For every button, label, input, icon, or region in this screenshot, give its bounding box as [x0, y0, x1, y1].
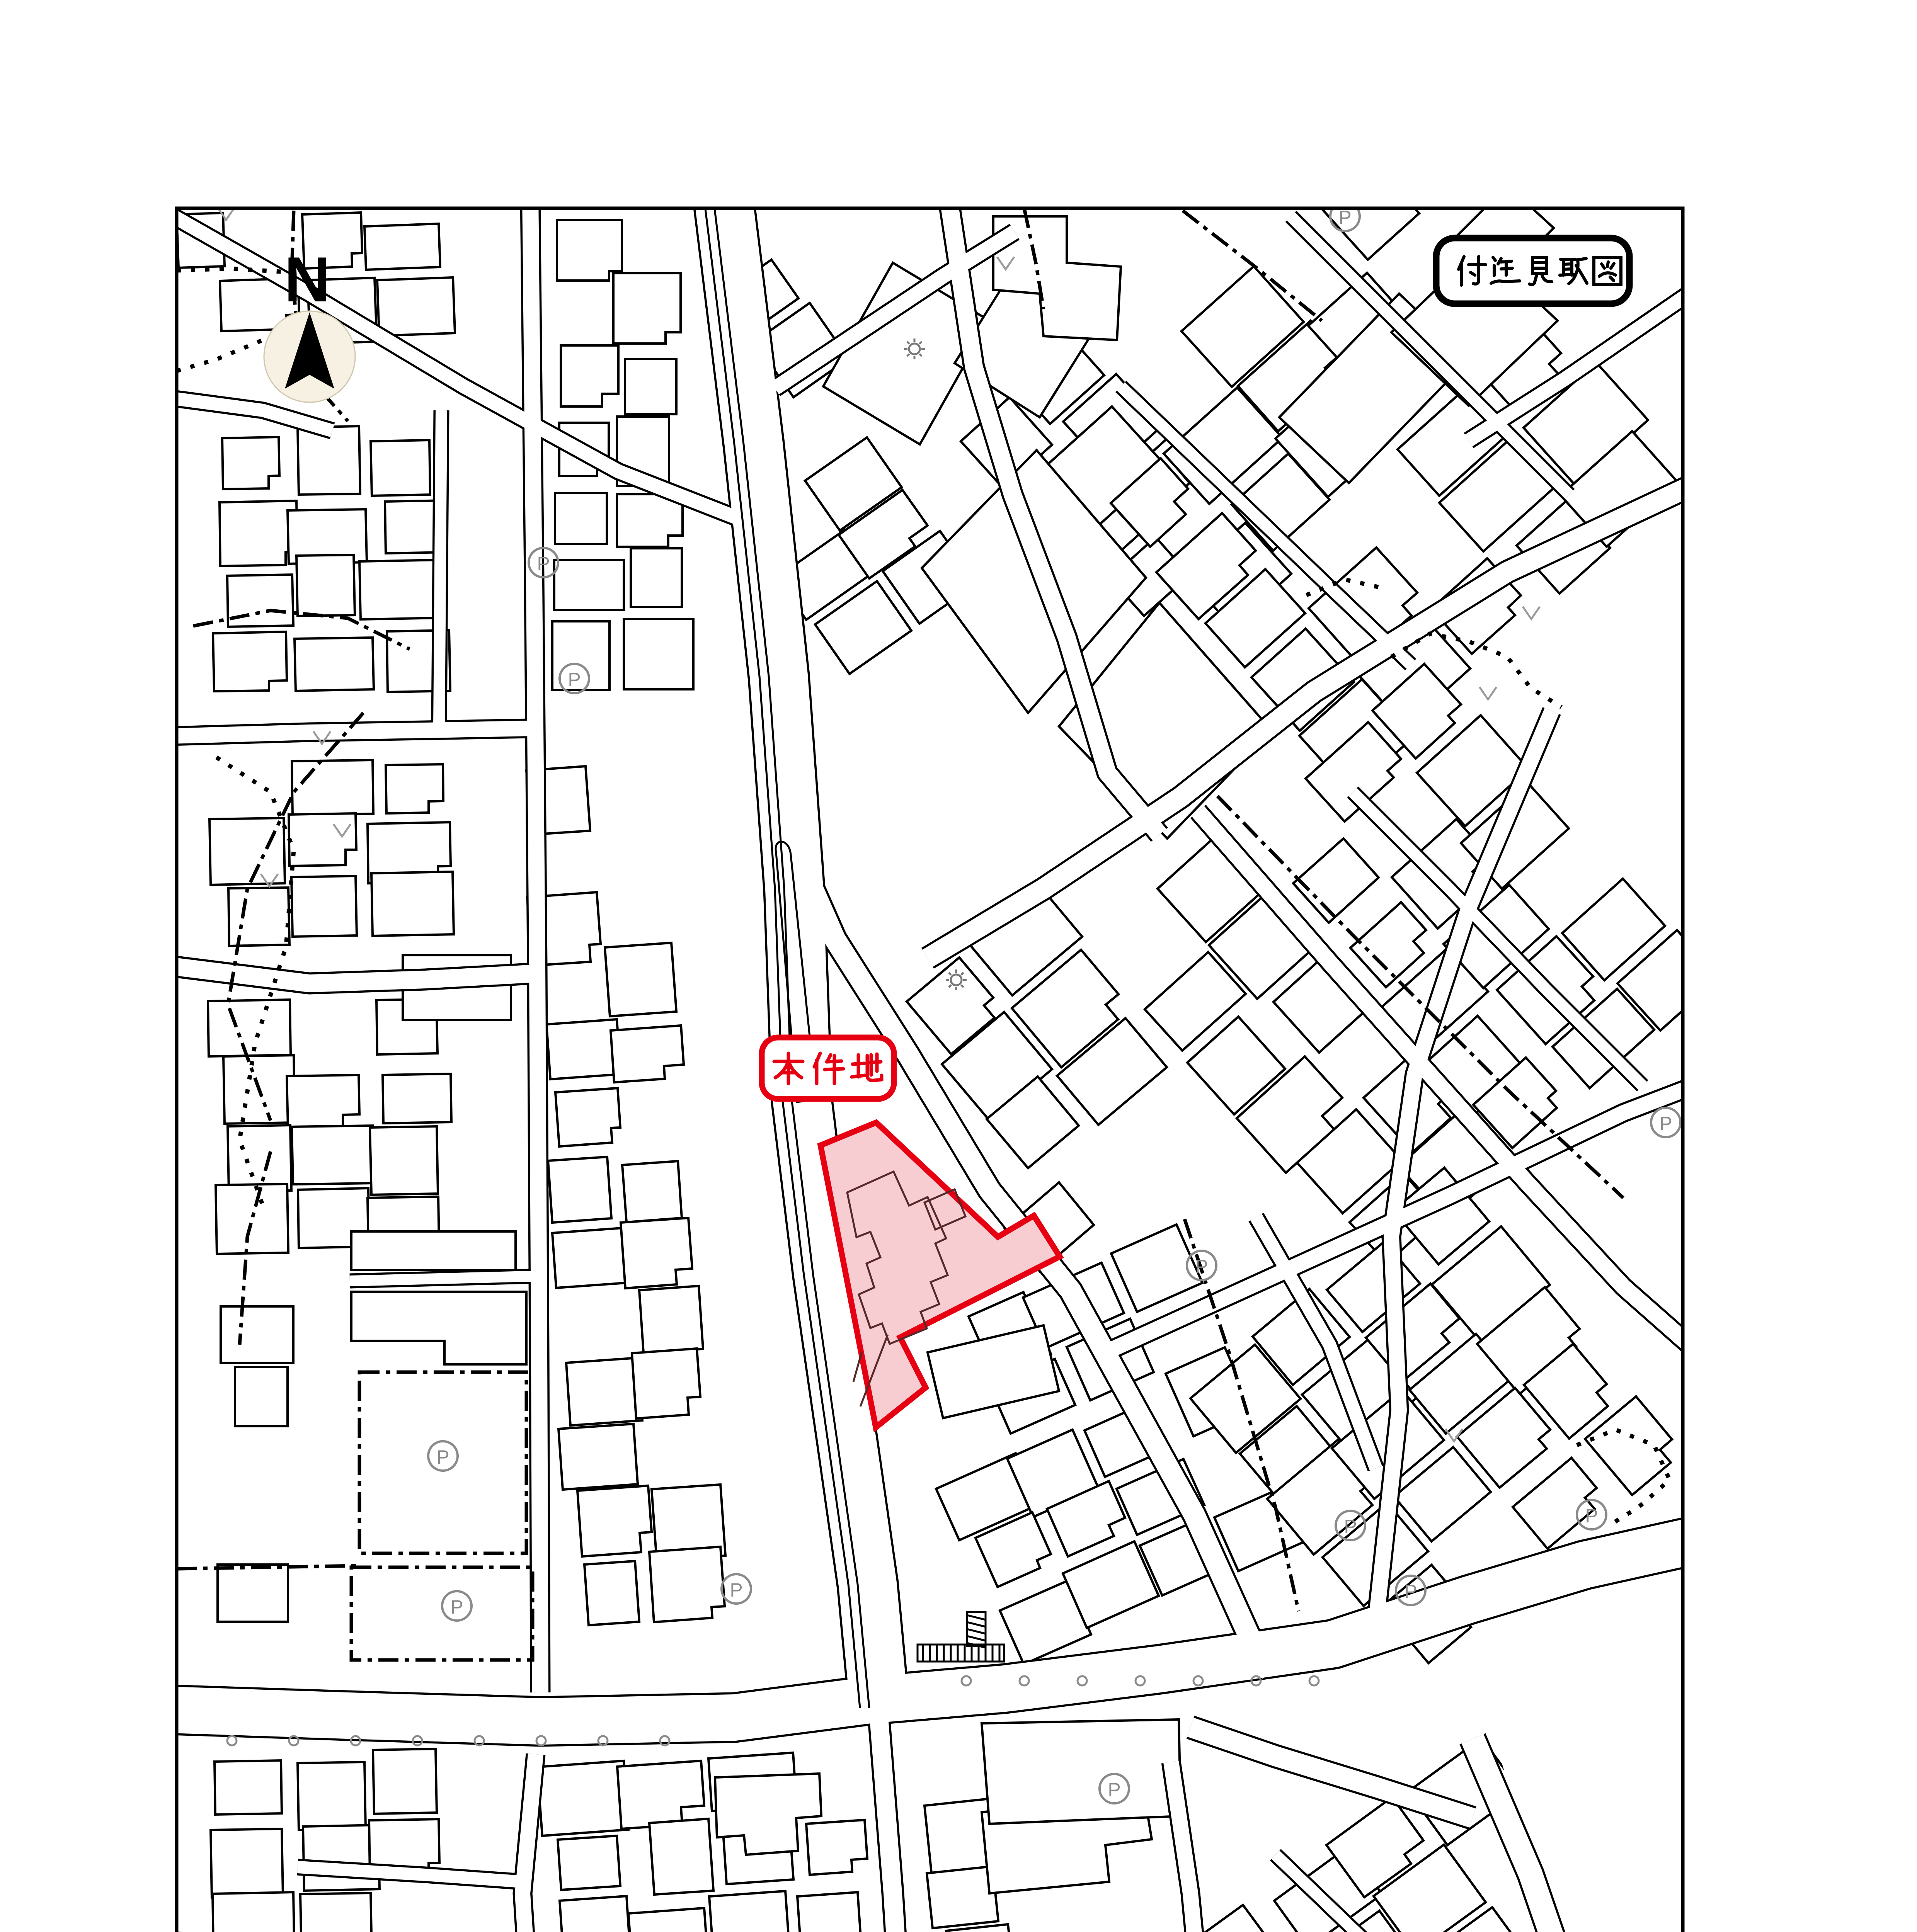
svg-text:P: P [1195, 1256, 1208, 1277]
svg-text:P: P [1108, 1779, 1120, 1801]
svg-text:P: P [1404, 1581, 1417, 1602]
svg-text:P: P [730, 1579, 742, 1601]
svg-text:N: N [284, 244, 330, 315]
svg-text:P: P [1659, 1113, 1672, 1134]
svg-text:P: P [537, 553, 550, 575]
svg-text:P: P [1585, 1505, 1598, 1527]
svg-text:P: P [1344, 1516, 1357, 1537]
svg-text:P: P [450, 1596, 463, 1618]
svg-text:P: P [436, 1446, 449, 1468]
svg-text:P: P [568, 669, 581, 690]
